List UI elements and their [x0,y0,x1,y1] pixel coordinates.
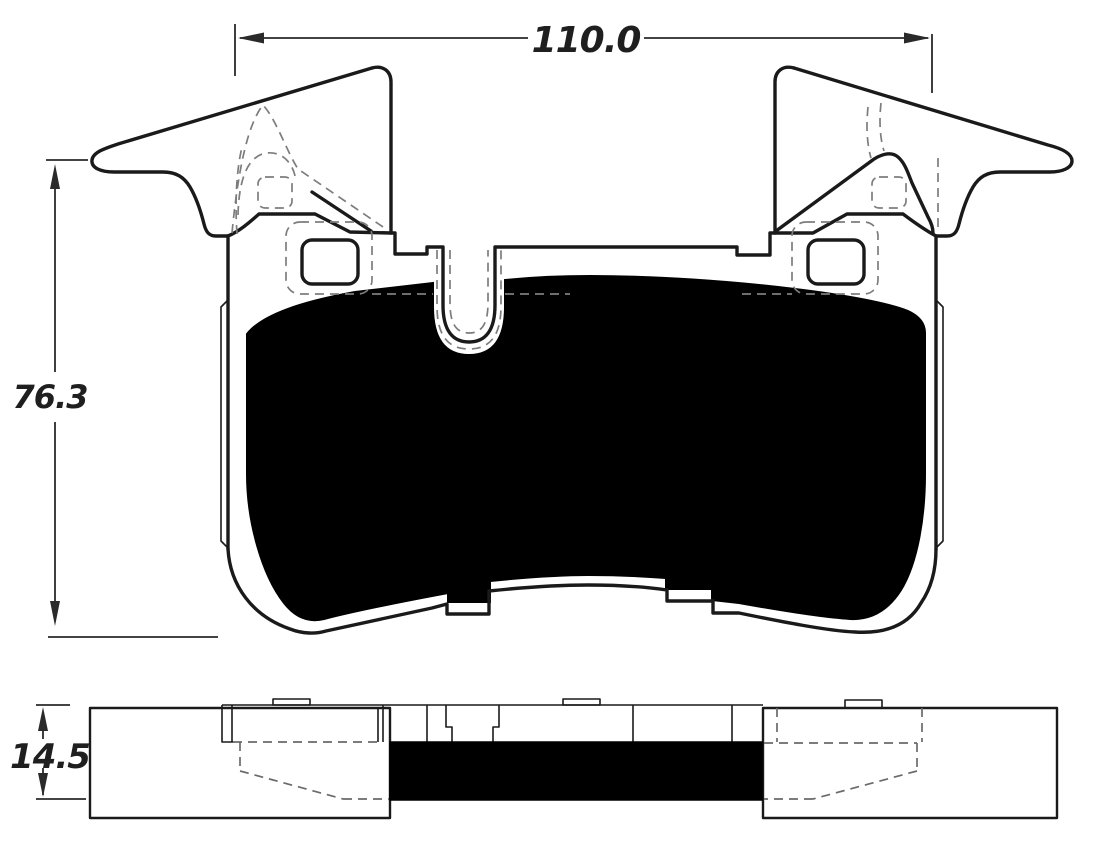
dimension-height-arrow-up [50,164,60,189]
dimension-height-label: 76.3 [13,378,88,416]
side-tab-center [563,699,600,705]
left-plate-hole [302,240,358,284]
front-view [92,67,1072,633]
dimension-thickness-label: 14.5 [10,737,90,777]
side-left-hidden-profile [233,742,389,799]
right-ear-corner-edge [775,67,794,233]
right-ear-hidden-drop-2 [880,103,884,151]
side-friction-material [390,742,762,800]
side-plate-left-end [222,705,233,742]
technical-drawing: 110.0 76.3 [0,0,1096,841]
dimension-width-arrow-right [904,33,930,44]
dimension-thickness-arrow-up [38,707,48,731]
right-plate-hole [808,240,864,284]
right-ear-hidden-drop-1 [867,107,871,158]
right-ear-hidden-hole [872,177,906,208]
dimension-width: 110.0 [235,20,932,93]
left-ear-outline [92,68,372,236]
side-plate-feature-lines [378,705,732,742]
friction-material [247,276,925,620]
left-ear-hidden-hole [258,177,292,208]
side-view [90,699,1057,818]
dimension-height: 76.3 [13,160,218,637]
left-ear-hidden-arch-inner [236,147,242,234]
dimension-width-label: 110.0 [532,20,641,61]
dimension-height-arrow-down [50,601,60,626]
side-right-hidden-profile [764,708,922,799]
left-ear-hidden-arc [238,153,296,215]
dimension-width-arrow-left [238,33,264,44]
left-ear-corner-edge [372,67,391,233]
side-tab-left [273,699,310,705]
right-ear-spring-arch [776,154,933,233]
left-ear-hidden-lines [232,105,386,294]
drawing-canvas: 110.0 76.3 [0,0,1096,841]
slot-hidden-inner [450,250,488,333]
right-ear-outline [794,68,1072,236]
dimension-thickness: 14.5 [10,705,90,799]
slot-hidden-outer [437,250,501,349]
side-right-end-block [763,708,1057,818]
